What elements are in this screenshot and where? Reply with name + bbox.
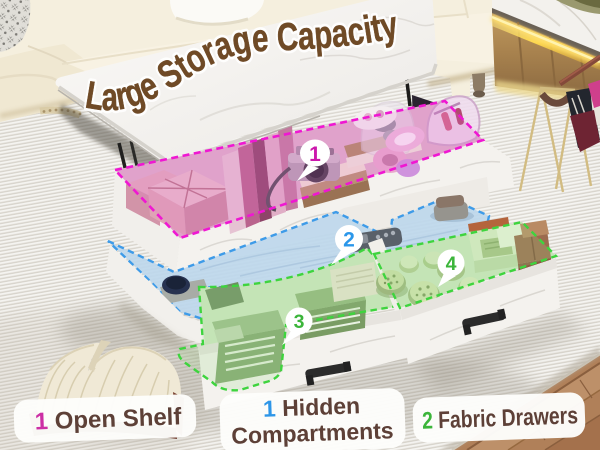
svg-text:3: 3 — [294, 311, 305, 333]
svg-text:2 Fabric Drawers: 2 Fabric Drawers — [422, 402, 579, 434]
svg-text:4: 4 — [446, 253, 457, 275]
svg-text:1 Hidden: 1 Hidden — [263, 392, 361, 421]
svg-text:2: 2 — [343, 229, 355, 252]
svg-text:1 Open Shelf: 1 Open Shelf — [34, 403, 183, 435]
svg-text:1: 1 — [309, 143, 321, 166]
